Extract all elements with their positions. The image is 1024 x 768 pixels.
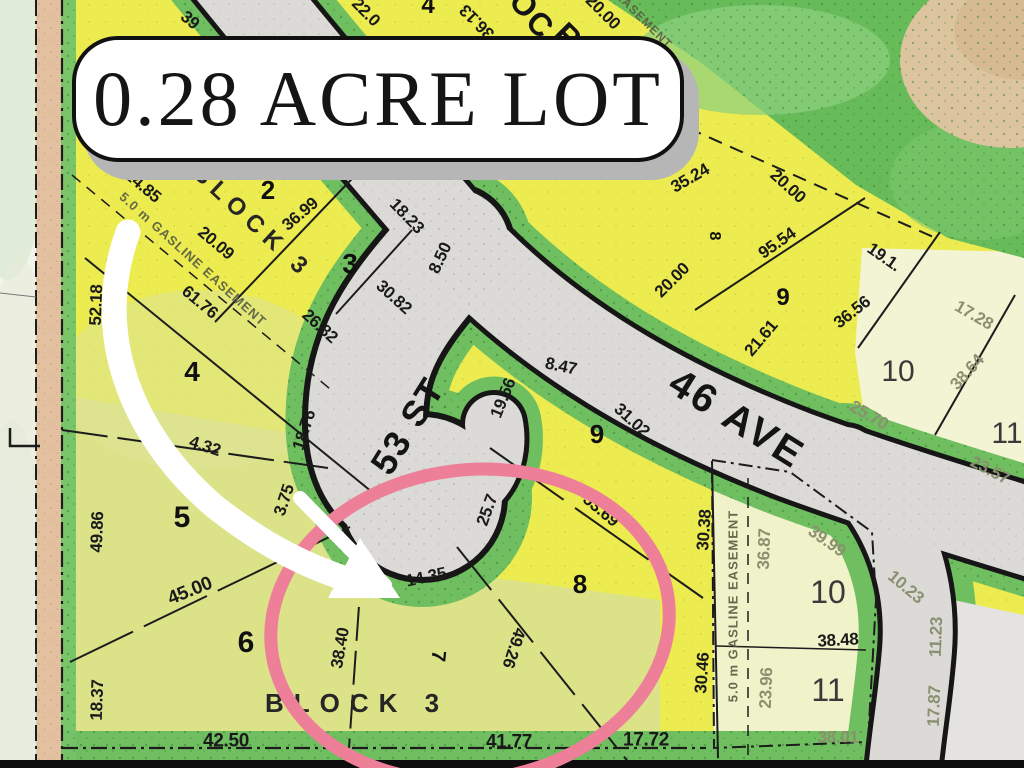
acreage-badge: 0.28 ACRE LOT: [72, 36, 684, 162]
plat-map: 53 ST46 AVEOCRBLOCK 3BLOCK 35.0 m GASLIN…: [0, 0, 1024, 768]
acreage-badge-label: 0.28 ACRE LOT: [93, 54, 663, 144]
highlight-circle: [250, 444, 689, 768]
hand-drawn-arrow: [114, 232, 400, 598]
